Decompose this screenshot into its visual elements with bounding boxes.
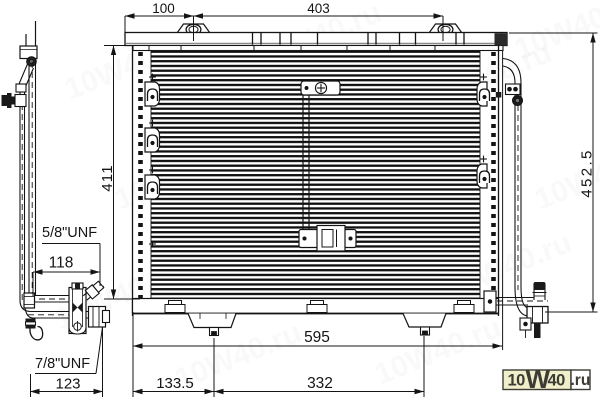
svg-text:.ru: .ru (571, 372, 591, 389)
svg-text:332: 332 (307, 375, 333, 392)
svg-text:123: 123 (55, 376, 80, 393)
svg-text:595: 595 (304, 329, 330, 346)
svg-text:411: 411 (99, 164, 116, 192)
svg-text:118: 118 (49, 255, 74, 272)
svg-text:100: 100 (152, 1, 175, 16)
svg-text:40: 40 (548, 372, 566, 390)
svg-text:133.5: 133.5 (156, 375, 194, 392)
svg-text:7/8"UNF: 7/8"UNF (35, 356, 90, 372)
svg-text:403: 403 (307, 1, 330, 16)
svg-text:10: 10 (508, 372, 526, 390)
svg-text:5/8"UNF: 5/8"UNF (42, 225, 97, 241)
svg-text:452.5: 452.5 (579, 148, 596, 198)
